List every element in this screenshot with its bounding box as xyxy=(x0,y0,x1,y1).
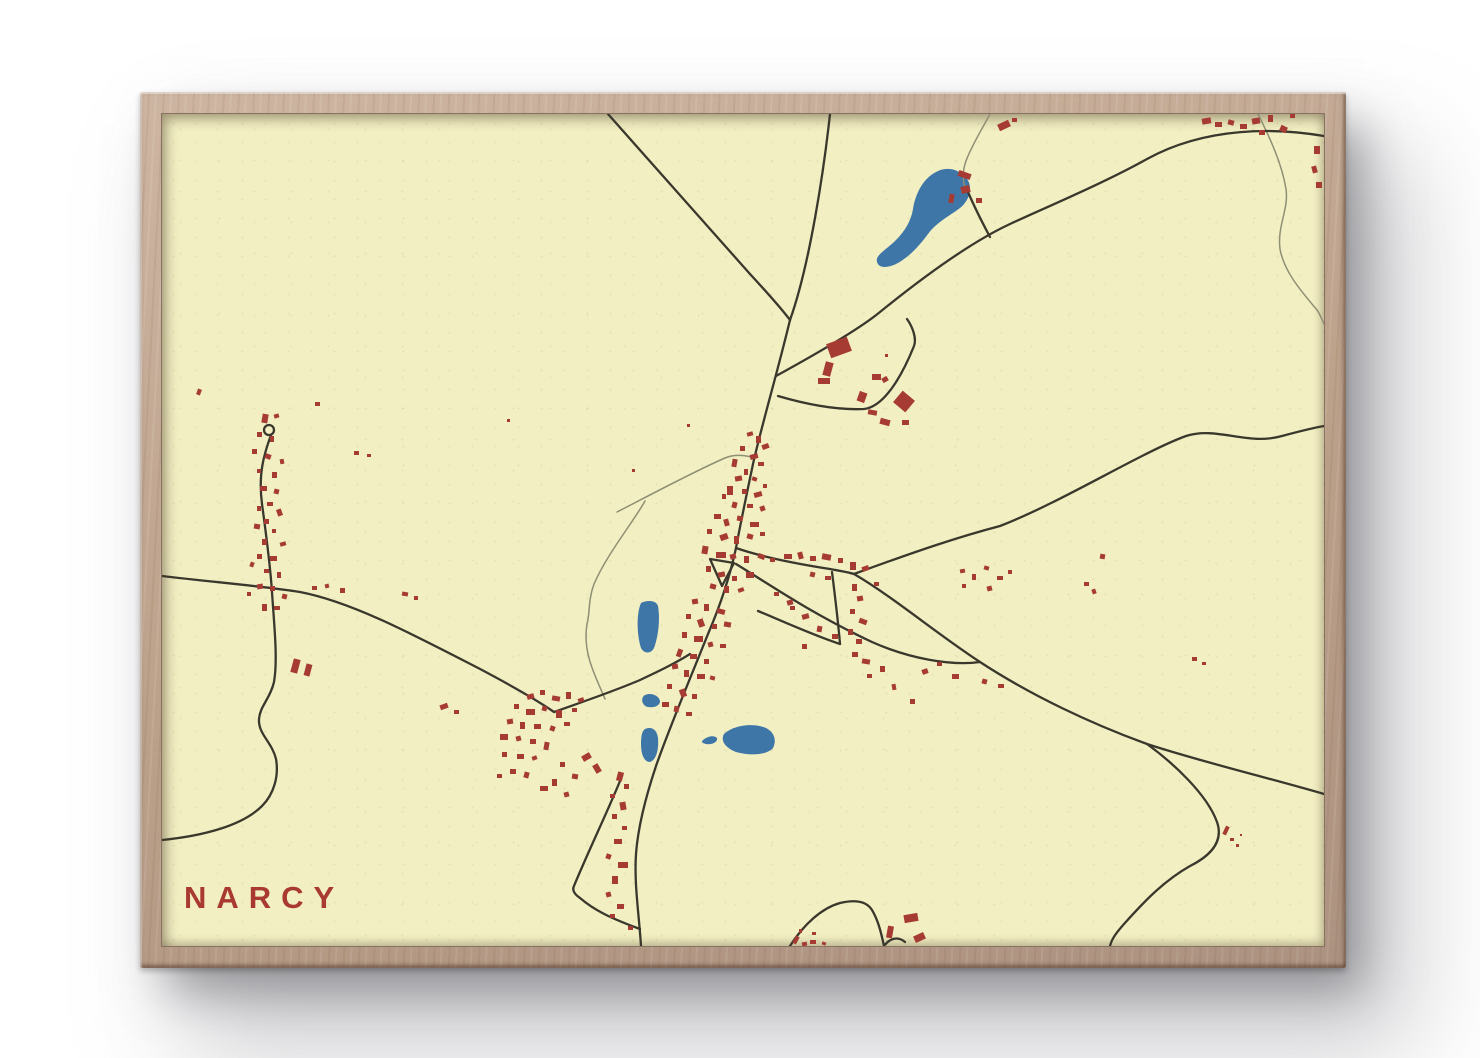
building xyxy=(712,624,717,629)
building xyxy=(742,489,747,494)
building xyxy=(605,891,611,897)
building xyxy=(856,639,862,644)
building xyxy=(281,593,287,599)
building xyxy=(672,664,679,670)
building xyxy=(662,702,669,707)
pond-small xyxy=(642,694,660,707)
building xyxy=(761,443,769,450)
building xyxy=(1268,115,1273,122)
building xyxy=(822,941,827,945)
building xyxy=(257,506,261,511)
building xyxy=(749,453,758,460)
road-bottom-hook xyxy=(884,939,905,946)
building xyxy=(910,699,915,704)
building xyxy=(252,449,257,454)
building xyxy=(560,762,565,767)
building xyxy=(984,565,990,570)
building xyxy=(1222,826,1229,836)
building xyxy=(1202,662,1206,665)
building xyxy=(799,929,802,933)
building xyxy=(667,684,672,689)
building xyxy=(802,644,807,649)
building xyxy=(701,546,708,555)
building xyxy=(257,432,262,437)
building xyxy=(628,926,633,930)
building xyxy=(563,791,569,797)
building xyxy=(716,552,726,558)
building xyxy=(196,388,202,395)
building xyxy=(304,663,313,676)
pond-lower xyxy=(641,728,658,762)
pond-upper xyxy=(638,601,659,652)
building xyxy=(272,529,276,533)
building xyxy=(790,606,795,610)
building xyxy=(716,608,725,615)
building xyxy=(858,618,867,625)
building xyxy=(998,684,1004,688)
building xyxy=(720,644,726,648)
building xyxy=(1084,582,1089,586)
building xyxy=(756,436,761,443)
building xyxy=(1240,834,1242,836)
building xyxy=(818,378,830,384)
building xyxy=(744,469,748,475)
building xyxy=(497,774,502,778)
road-north-west-diagonal xyxy=(608,114,790,320)
building xyxy=(731,501,737,508)
building xyxy=(616,771,624,781)
building xyxy=(848,629,853,635)
building xyxy=(694,636,703,642)
road-hamlet-to-village xyxy=(554,654,690,712)
building xyxy=(727,486,733,495)
building xyxy=(277,572,281,578)
building xyxy=(770,558,775,562)
building xyxy=(759,505,765,511)
road-southeast-loop xyxy=(1110,744,1219,946)
building xyxy=(822,553,832,560)
building xyxy=(676,648,683,657)
building xyxy=(913,932,926,943)
building xyxy=(886,926,894,939)
building xyxy=(507,419,510,422)
building xyxy=(686,614,691,619)
building xyxy=(892,684,897,691)
building xyxy=(801,613,809,620)
lake-north xyxy=(877,169,970,267)
building xyxy=(857,596,864,602)
building xyxy=(723,518,730,526)
building xyxy=(274,413,280,418)
building xyxy=(976,198,982,203)
building xyxy=(704,659,709,664)
building xyxy=(530,739,536,744)
building xyxy=(722,494,726,499)
building xyxy=(280,541,287,546)
building xyxy=(572,774,579,780)
building xyxy=(981,678,987,684)
building xyxy=(810,940,816,944)
building xyxy=(760,532,765,536)
building xyxy=(1240,124,1247,129)
building xyxy=(619,802,626,811)
building xyxy=(276,508,283,516)
building xyxy=(838,558,843,563)
building xyxy=(1236,844,1239,847)
building xyxy=(952,674,959,679)
building xyxy=(605,853,611,859)
building xyxy=(784,554,792,559)
building xyxy=(810,556,816,561)
building xyxy=(682,632,687,638)
building xyxy=(618,862,628,868)
building xyxy=(610,794,615,798)
building xyxy=(724,621,732,627)
building xyxy=(774,592,779,596)
road-southeast-branch xyxy=(854,574,1324,794)
building xyxy=(729,553,736,559)
building xyxy=(687,424,690,427)
building xyxy=(697,674,705,679)
building xyxy=(510,769,516,774)
building xyxy=(857,391,868,403)
building xyxy=(257,469,261,473)
building xyxy=(249,561,254,567)
building xyxy=(1192,657,1197,661)
road-south-hamlet-loop xyxy=(573,776,640,929)
building xyxy=(1227,119,1234,125)
building xyxy=(273,488,279,494)
building xyxy=(724,586,729,593)
building xyxy=(247,592,251,596)
building xyxy=(763,484,767,488)
building xyxy=(704,604,709,611)
building xyxy=(879,418,890,426)
building xyxy=(674,706,680,713)
building xyxy=(709,583,716,589)
building xyxy=(747,431,754,436)
building xyxy=(290,658,300,673)
building xyxy=(893,391,915,413)
building xyxy=(262,604,267,611)
building xyxy=(986,585,992,591)
building xyxy=(261,414,268,424)
building xyxy=(340,588,345,593)
building xyxy=(1311,165,1318,173)
building xyxy=(758,462,764,466)
building xyxy=(502,752,507,757)
building xyxy=(581,752,592,762)
building xyxy=(872,374,881,380)
building xyxy=(885,354,888,357)
building xyxy=(753,491,762,498)
building xyxy=(751,476,757,481)
building xyxy=(534,724,541,729)
building xyxy=(684,670,689,677)
building xyxy=(315,402,320,406)
road-main-through-village xyxy=(636,320,790,946)
building xyxy=(507,719,514,725)
building xyxy=(826,337,852,359)
building xyxy=(520,722,525,729)
building xyxy=(262,539,267,545)
building xyxy=(312,586,317,590)
building xyxy=(852,652,858,657)
building xyxy=(1215,122,1222,127)
building xyxy=(325,584,330,589)
building xyxy=(612,876,618,884)
building xyxy=(540,690,545,695)
building xyxy=(624,784,629,789)
building xyxy=(903,913,918,923)
building xyxy=(270,556,277,561)
town-map-graphic xyxy=(162,114,1324,946)
building xyxy=(731,459,737,468)
road-village-cross-street-a xyxy=(832,572,840,644)
building xyxy=(1316,182,1322,188)
building xyxy=(862,658,871,664)
building xyxy=(747,504,753,508)
building xyxy=(1314,146,1320,154)
building xyxy=(710,675,716,680)
building xyxy=(1290,114,1295,118)
building xyxy=(962,584,966,588)
building xyxy=(254,524,261,530)
building xyxy=(257,554,262,559)
building xyxy=(514,704,519,709)
building xyxy=(750,522,759,527)
building xyxy=(881,376,889,383)
building xyxy=(740,446,745,451)
building xyxy=(744,556,749,563)
building xyxy=(737,516,744,522)
building xyxy=(719,533,729,541)
building xyxy=(267,502,273,506)
building xyxy=(592,763,602,774)
building xyxy=(972,574,976,580)
building xyxy=(997,576,1003,580)
building xyxy=(272,472,277,478)
road-left-hamlet-loop xyxy=(264,425,274,435)
building xyxy=(1091,588,1096,594)
building xyxy=(921,668,928,675)
building xyxy=(414,596,418,600)
building xyxy=(367,454,371,457)
path-top-right-corner xyxy=(1258,114,1324,324)
building xyxy=(264,519,269,524)
path-village-to-hamlet xyxy=(586,501,645,699)
building xyxy=(610,914,615,918)
building xyxy=(515,735,521,741)
building xyxy=(690,654,697,659)
building xyxy=(812,932,816,935)
building xyxy=(556,710,562,718)
building xyxy=(523,771,529,778)
road-northeast-sweep xyxy=(776,131,1324,376)
building xyxy=(549,725,555,731)
road-village-east-street xyxy=(736,548,854,574)
building xyxy=(880,666,885,672)
building xyxy=(825,576,831,580)
building xyxy=(746,572,754,578)
building xyxy=(937,662,942,666)
building xyxy=(707,641,713,647)
building xyxy=(960,569,966,574)
building xyxy=(1100,554,1106,560)
building xyxy=(566,692,571,699)
building xyxy=(280,459,285,465)
building xyxy=(809,571,815,577)
building xyxy=(1259,130,1265,135)
building xyxy=(257,584,264,590)
building xyxy=(1008,570,1012,574)
building xyxy=(718,571,726,577)
road-left-hamlet-street xyxy=(162,435,277,840)
building xyxy=(552,695,561,701)
building xyxy=(746,533,753,539)
building xyxy=(1012,118,1017,122)
building xyxy=(734,536,739,544)
building xyxy=(852,584,857,591)
building xyxy=(874,582,879,586)
building xyxy=(867,674,872,678)
wood-picture-frame: NARCY xyxy=(140,92,1346,968)
building xyxy=(706,566,711,572)
building xyxy=(902,420,909,425)
building xyxy=(697,618,705,628)
building xyxy=(802,942,808,946)
building xyxy=(572,708,577,712)
building xyxy=(786,599,793,605)
road-village-cross-street-b xyxy=(758,611,840,644)
building xyxy=(270,586,275,591)
building xyxy=(264,569,269,573)
building xyxy=(822,361,833,377)
building xyxy=(617,904,624,909)
building xyxy=(1230,838,1234,841)
road-north-vertical xyxy=(790,114,830,320)
building xyxy=(612,814,617,819)
building xyxy=(686,712,692,716)
road-west-to-left-edge xyxy=(162,576,554,712)
road-village-diagonal-street xyxy=(736,564,980,663)
building xyxy=(500,734,508,740)
building xyxy=(797,551,804,559)
building xyxy=(540,786,548,791)
building xyxy=(1202,117,1212,124)
building xyxy=(622,826,627,830)
building xyxy=(707,529,712,534)
building xyxy=(692,694,697,699)
building xyxy=(817,626,823,633)
building xyxy=(270,436,274,442)
pond-east xyxy=(723,725,775,754)
building xyxy=(997,120,1011,131)
building xyxy=(552,779,557,786)
building xyxy=(526,709,535,715)
map-poster-canvas: NARCY xyxy=(161,113,1325,947)
building xyxy=(614,839,622,844)
building xyxy=(543,742,549,751)
building xyxy=(732,576,737,581)
building xyxy=(692,599,699,605)
pond-sliver xyxy=(702,736,717,744)
building xyxy=(517,754,524,759)
building xyxy=(564,722,570,726)
road-bottom-arc xyxy=(790,901,884,946)
building xyxy=(454,710,459,714)
building xyxy=(850,562,856,570)
building xyxy=(735,475,743,481)
building xyxy=(868,409,878,415)
building xyxy=(439,703,448,710)
road-east-to-right-edge xyxy=(854,426,1324,574)
building xyxy=(354,451,359,455)
building xyxy=(531,755,537,760)
building xyxy=(714,514,721,519)
building xyxy=(832,634,838,639)
building xyxy=(737,587,744,593)
building xyxy=(274,606,280,610)
building xyxy=(260,486,267,491)
building xyxy=(850,609,855,614)
building xyxy=(632,469,635,472)
building xyxy=(402,592,409,597)
map-title: NARCY xyxy=(184,880,344,916)
building xyxy=(1252,117,1261,124)
